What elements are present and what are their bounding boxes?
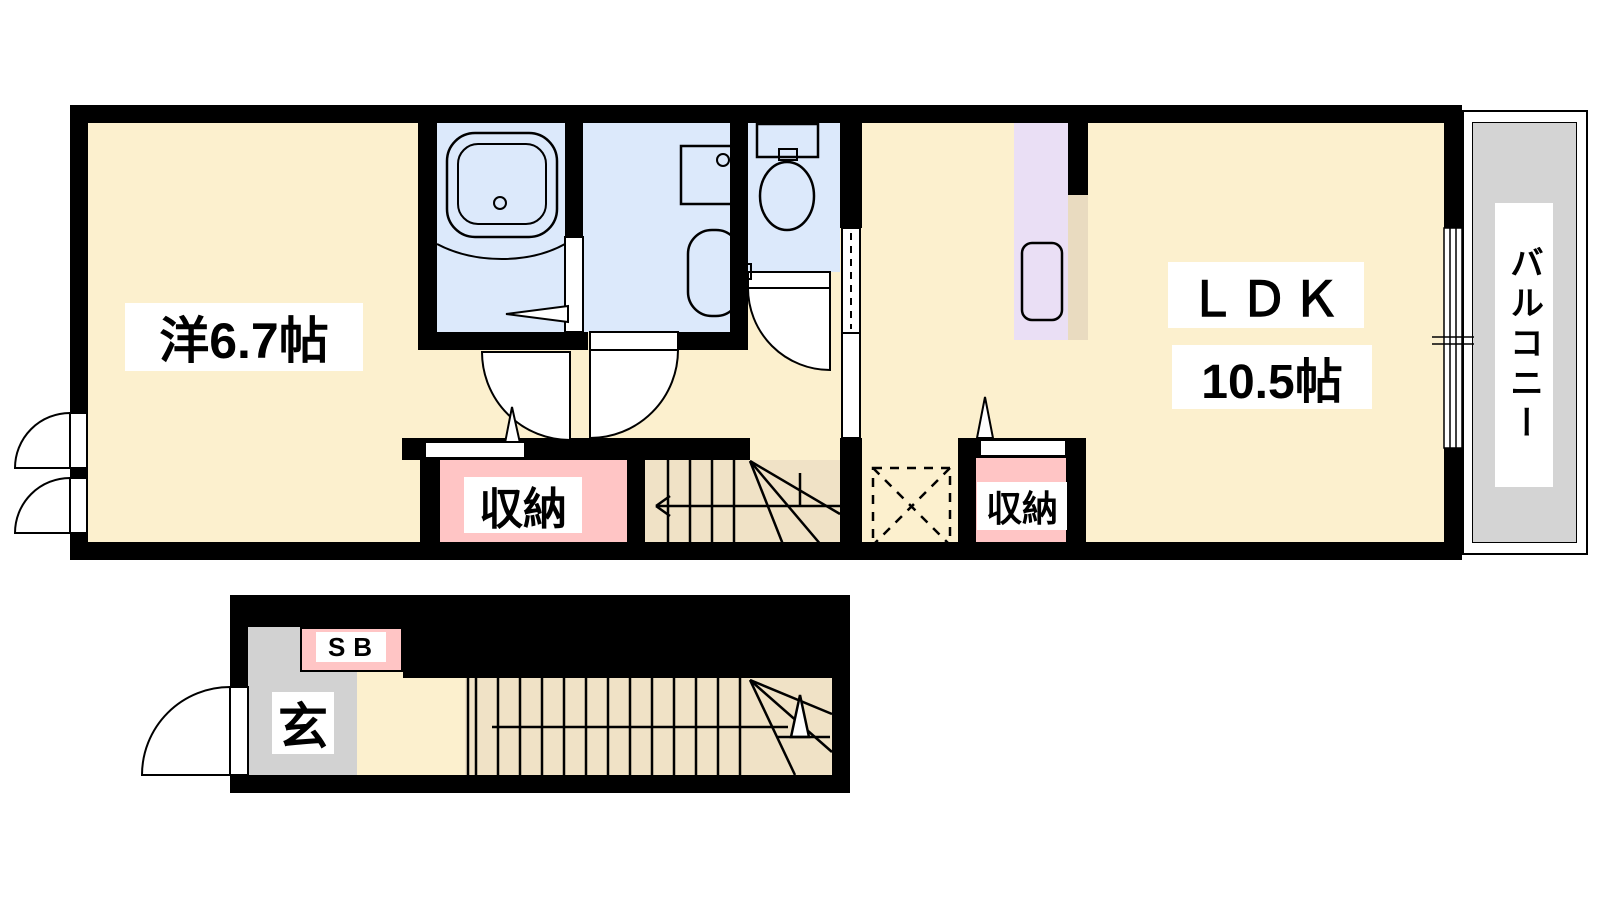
wall-right-lower — [1444, 448, 1462, 560]
wall-bathroom-left — [418, 105, 437, 350]
door-west-lower-swing — [15, 478, 87, 533]
lower-wall-right — [832, 627, 850, 775]
wall-left-lower — [70, 533, 88, 560]
entrance-door-swing — [142, 687, 248, 775]
lower-wall-top — [230, 595, 850, 627]
lower-wall-stairwell — [403, 627, 832, 678]
lower-wall-left — [230, 627, 248, 687]
wall-stairs-top — [645, 438, 750, 460]
balcony-label: バルコニー — [1495, 203, 1553, 487]
staircase-lower-floor — [465, 678, 832, 775]
wall-under-washroom — [678, 332, 748, 350]
storage-ldk-label: 収納 — [977, 482, 1067, 530]
wall-top — [70, 105, 1462, 123]
kitchen-counter — [1014, 123, 1070, 340]
wall-bath-washroom — [565, 105, 583, 237]
washroom-floor — [583, 123, 730, 332]
wall-left-upper — [70, 105, 88, 413]
wall-washroom-toilet — [730, 105, 748, 350]
wall-hall-ldk-lower — [840, 438, 862, 560]
wall-storage-left — [420, 438, 440, 552]
wall-hall-ldk-upper — [840, 105, 862, 228]
wall-under-bath — [418, 332, 588, 350]
entrance-label: 玄 — [272, 692, 334, 754]
ldk-label: ＬＤＫ — [1168, 262, 1364, 328]
wall-left-mid — [70, 468, 88, 478]
wall-bottom — [70, 542, 1462, 560]
bathroom-floor — [437, 123, 565, 332]
toilet-floor — [748, 123, 840, 272]
floor-plan-canvas: 洋6.7帖 ＬＤＫ 10.5帖 収納 収納 バルコニー 玄 SB — [0, 0, 1600, 900]
storage-hall-label: 収納 — [464, 477, 582, 533]
western-room-label: 洋6.7帖 — [125, 303, 363, 371]
wall-storage-right — [627, 438, 645, 552]
kitchen-counter-edge — [1068, 195, 1088, 340]
door-west-upper-swing — [15, 413, 87, 468]
staircase-upper-floor — [645, 460, 840, 552]
wall-right-upper — [1444, 105, 1462, 228]
ldk-area-label: 10.5帖 — [1172, 345, 1372, 409]
wall-kitchen-stub — [1068, 105, 1088, 195]
shoe-box-label: SB — [316, 632, 386, 662]
lower-wall-bottom — [230, 775, 850, 793]
